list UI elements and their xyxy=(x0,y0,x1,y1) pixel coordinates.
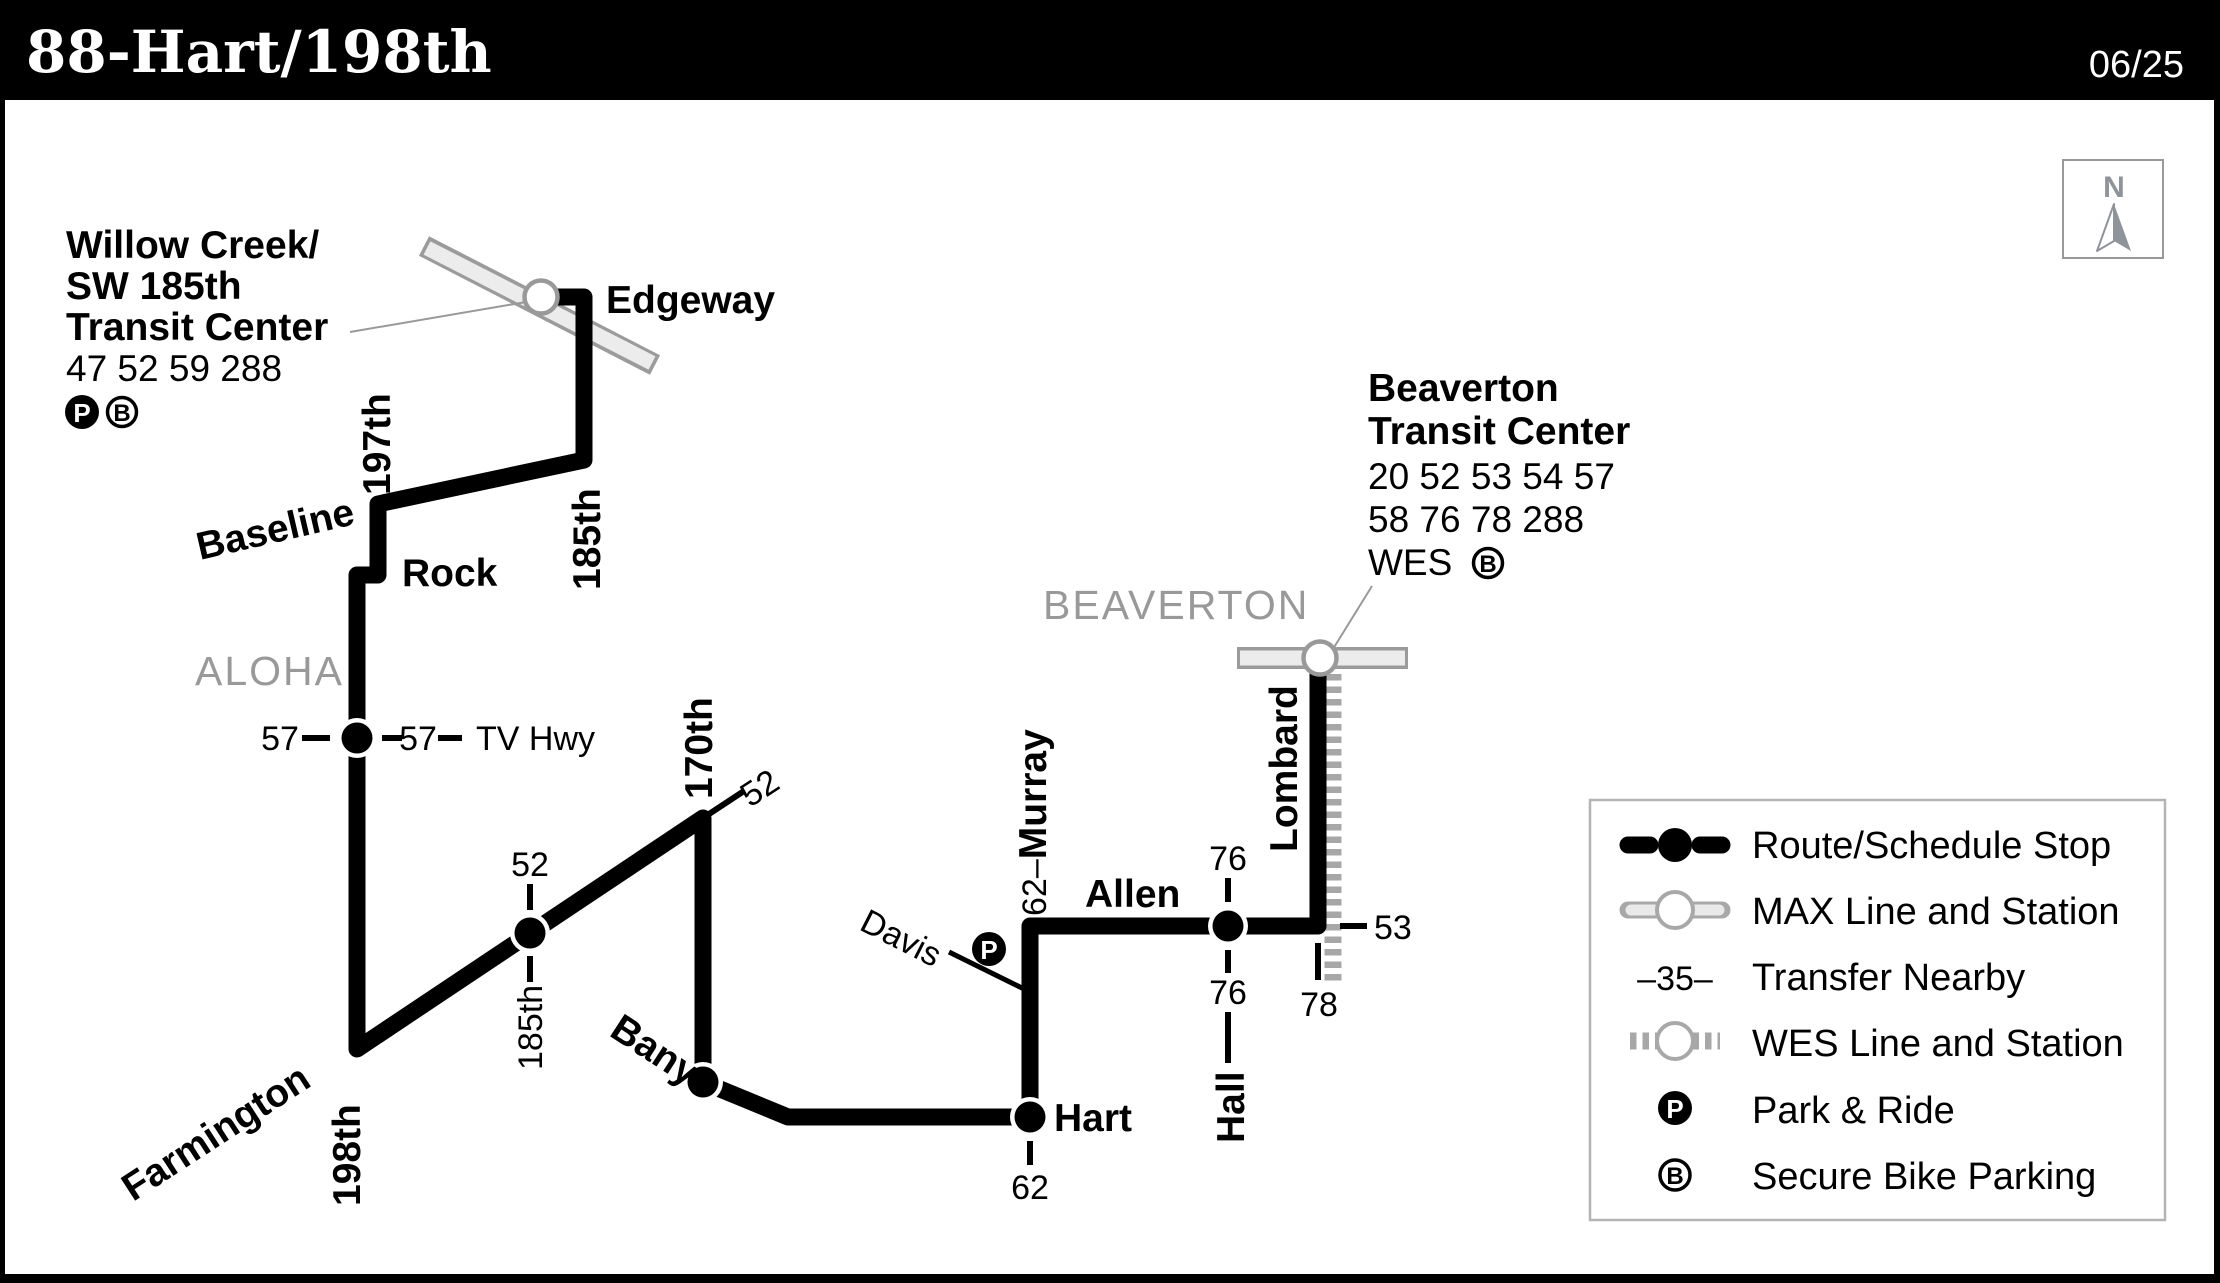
beaverton-tc-routes-2: 58 76 78 288 xyxy=(1368,499,1584,540)
svg-text:B: B xyxy=(113,400,130,427)
legend-label-bike-parking: Secure Bike Parking xyxy=(1752,1156,2096,1198)
svg-text:P: P xyxy=(1666,1094,1683,1124)
willow-creek-station xyxy=(525,281,558,314)
beaverton-tc-name-2: Transit Center xyxy=(1368,410,1630,453)
street-label-murray: 62–Murray xyxy=(1012,729,1055,916)
stop-hart xyxy=(1010,1097,1050,1137)
legend: Route/Schedule Stop MAX Line and Station… xyxy=(1590,800,2165,1220)
street-label-198th: 198th xyxy=(326,1104,369,1206)
stop-tv-hwy xyxy=(337,718,377,758)
street-label-allen: Allen xyxy=(1085,873,1180,916)
street-label-197th: 197th xyxy=(356,393,399,495)
transfer-62-hart: 62 xyxy=(1011,1169,1049,1207)
legend-label-wes: WES Line and Station xyxy=(1752,1023,2124,1065)
bike-parking-icon: B xyxy=(108,398,137,428)
transfer-53: 53 xyxy=(1374,909,1412,947)
svg-text:B: B xyxy=(1666,1163,1683,1190)
transfer-57-right: 57 xyxy=(399,720,437,758)
street-label-lombard: Lombard xyxy=(1263,685,1306,852)
area-label-aloha: ALOHA xyxy=(195,648,344,694)
street-label-hall: Hall xyxy=(1210,1071,1253,1143)
legend-label-park-ride: Park & Ride xyxy=(1752,1090,1955,1132)
street-label-tv-hwy: TV Hwy xyxy=(476,720,595,758)
legend-label-transfer: Transfer Nearby xyxy=(1752,957,2025,999)
street-label-185th-lower: 185th xyxy=(512,985,550,1070)
bike-parking-icon: B xyxy=(1660,1160,1690,1190)
park-and-ride-icon: P xyxy=(972,932,1006,966)
street-label-edgeway: Edgeway xyxy=(606,279,775,322)
svg-text:B: B xyxy=(1479,551,1496,578)
route-map-page: 88-Hart/198th 06/25 xyxy=(0,0,2220,1283)
transfer-76-above: 76 xyxy=(1209,840,1247,878)
park-and-ride-icon: P xyxy=(65,395,99,429)
beaverton-tc-name-1: Beaverton xyxy=(1368,367,1559,410)
page-title: 88-Hart/198th xyxy=(26,18,492,86)
street-label-rock: Rock xyxy=(402,552,498,595)
street-label-170th: 170th xyxy=(678,697,721,799)
stop-allen-hall xyxy=(1208,906,1248,946)
legend-label-max: MAX Line and Station xyxy=(1752,891,2120,933)
compass: N xyxy=(2063,160,2163,258)
revision-date: 06/25 xyxy=(2089,44,2184,86)
svg-text:P: P xyxy=(980,935,997,965)
park-and-ride-icon: P xyxy=(1658,1091,1692,1125)
willow-creek-name-3: Transit Center xyxy=(66,306,328,349)
street-label-hart: Hart xyxy=(1054,1097,1132,1140)
beaverton-station xyxy=(1304,642,1337,675)
area-label-beaverton: BEAVERTON xyxy=(1043,582,1309,628)
bike-parking-icon: B xyxy=(1474,549,1503,579)
beaverton-tc-routes-1: 20 52 53 54 57 xyxy=(1368,456,1615,497)
transfer-78: 78 xyxy=(1300,986,1338,1024)
transfer-57-left: 57 xyxy=(261,720,299,758)
willow-creek-routes: 47 52 59 288 xyxy=(66,348,282,389)
north-label: N xyxy=(2103,171,2125,204)
willow-creek-name-1: Willow Creek/ xyxy=(66,224,319,267)
willow-creek-name-2: SW 185th xyxy=(66,265,242,308)
transfer-62-murray: 62– xyxy=(1016,859,1054,916)
transfer-nearby-icon: –35– xyxy=(1637,960,1713,998)
route-map-canvas: 88-Hart/198th 06/25 xyxy=(0,0,2220,1283)
beaverton-tc-wes: WES xyxy=(1368,542,1452,583)
transfer-76-below: 76 xyxy=(1209,974,1247,1012)
svg-text:P: P xyxy=(73,398,90,428)
legend-label-route-stop: Route/Schedule Stop xyxy=(1752,825,2111,867)
transfer-52-185th: 52 xyxy=(511,846,549,884)
street-label-185th-upper: 185th xyxy=(566,488,609,590)
stop-185th xyxy=(510,913,550,953)
